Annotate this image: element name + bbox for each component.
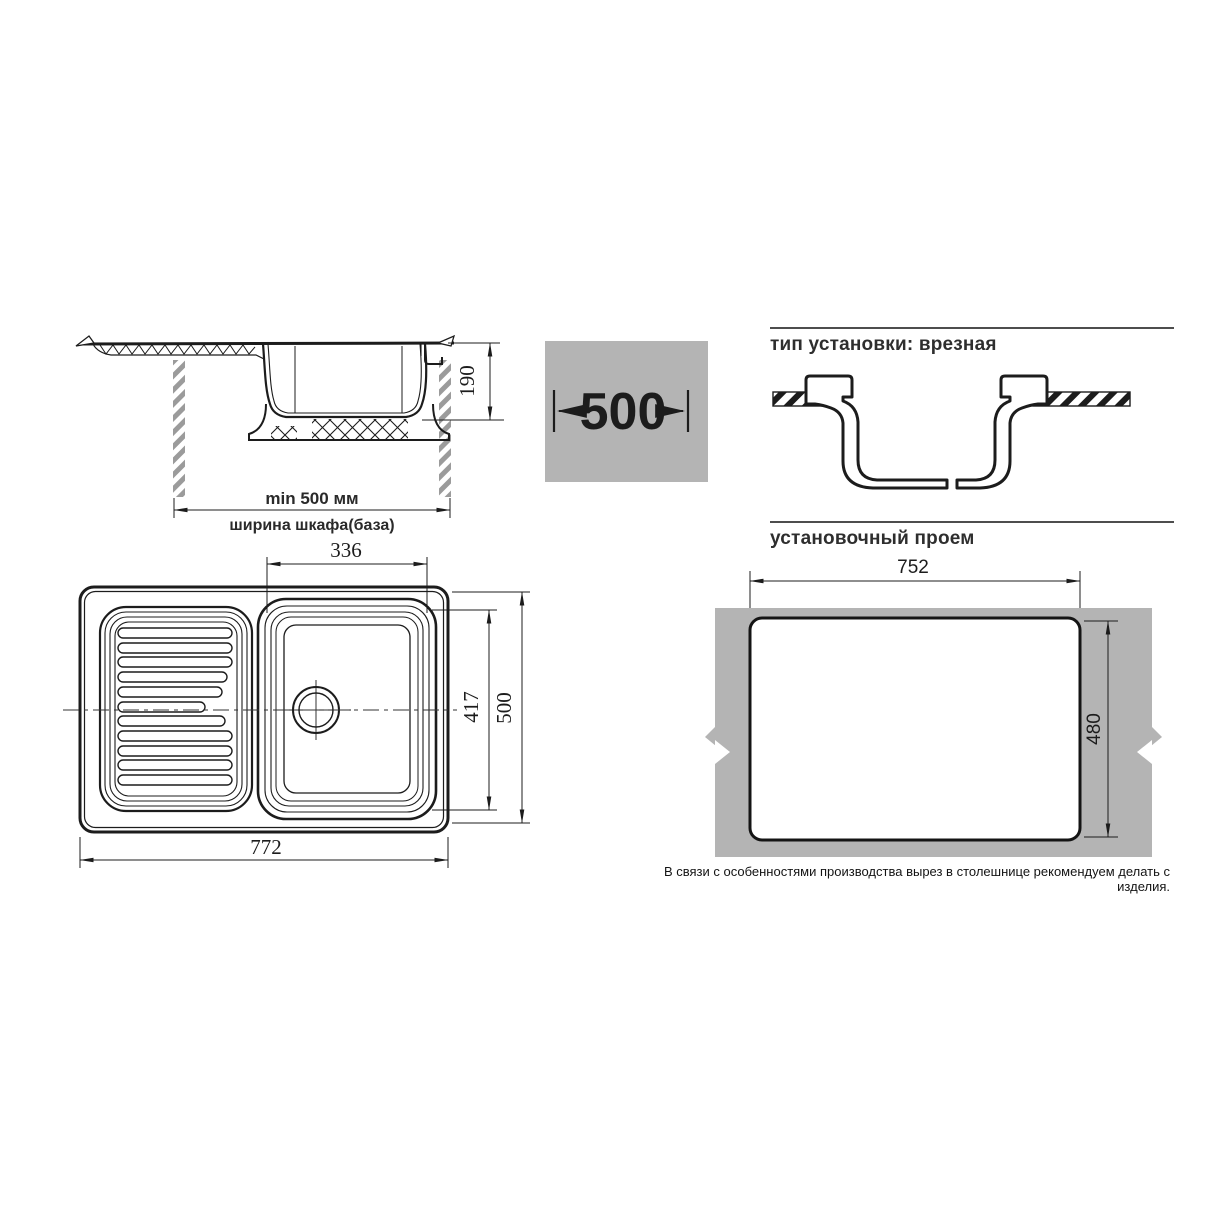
install-type-drawing bbox=[772, 362, 1180, 502]
cutout-heading: установочный проем bbox=[770, 528, 975, 550]
dim-bowl-depth: 417 bbox=[432, 610, 497, 810]
bowl-width-label: 336 bbox=[330, 538, 362, 562]
cabinet-width-badge: 500 bbox=[545, 341, 708, 482]
break-tooth-left bbox=[705, 726, 716, 746]
install-type-heading: тип установки: врезная bbox=[770, 334, 997, 356]
cutout-opening bbox=[750, 618, 1080, 840]
sink-edge-profile-left bbox=[806, 376, 947, 488]
sink-depth-label: 500 bbox=[492, 692, 516, 724]
dim-sink-width: 772 bbox=[80, 835, 448, 868]
break-tooth-right bbox=[1151, 726, 1162, 746]
cutout-drawing: 752 480 bbox=[700, 555, 1180, 865]
depth-dim-label: 190 bbox=[455, 365, 479, 397]
sink-section-profile bbox=[76, 336, 454, 440]
badge-width-label: 500 bbox=[580, 383, 667, 441]
drainboard bbox=[100, 607, 252, 811]
cutout-width-label: 752 bbox=[897, 557, 929, 578]
drainboard-ribs bbox=[118, 628, 232, 785]
min-width-label: min 500 мм bbox=[265, 489, 358, 508]
sink-edge-profile-right bbox=[957, 376, 1047, 488]
section-rule-install-type bbox=[770, 327, 1174, 329]
bowl-depth-label: 417 bbox=[459, 691, 483, 723]
production-note: В связи с особенностями производства выр… bbox=[655, 864, 1170, 894]
bottom-crosshatch-small bbox=[271, 426, 297, 439]
cutout-height-label: 480 bbox=[1084, 713, 1105, 745]
drainboard-hatch bbox=[100, 345, 255, 354]
sink-top-view bbox=[63, 587, 457, 832]
bowl bbox=[258, 599, 436, 819]
dim-depth-190: 190 bbox=[422, 343, 504, 420]
cabinet-width-label: ширина шкафа(база) bbox=[229, 517, 394, 534]
bottom-crosshatch bbox=[312, 419, 408, 439]
cabinet-wall-left bbox=[173, 360, 185, 497]
drawing-canvas: 190 min 500 мм ширина шкафа(база) 500 ти… bbox=[0, 0, 1219, 1219]
section-rule-cutout bbox=[770, 521, 1174, 523]
top-view-drawing: 336 bbox=[60, 545, 546, 880]
dim-cabinet-width: min 500 мм ширина шкафа(база) bbox=[174, 489, 450, 534]
sink-width-label: 772 bbox=[250, 835, 282, 859]
side-view-drawing: 190 min 500 мм ширина шкафа(база) bbox=[60, 330, 512, 542]
dim-bowl-width: 336 bbox=[267, 538, 427, 613]
